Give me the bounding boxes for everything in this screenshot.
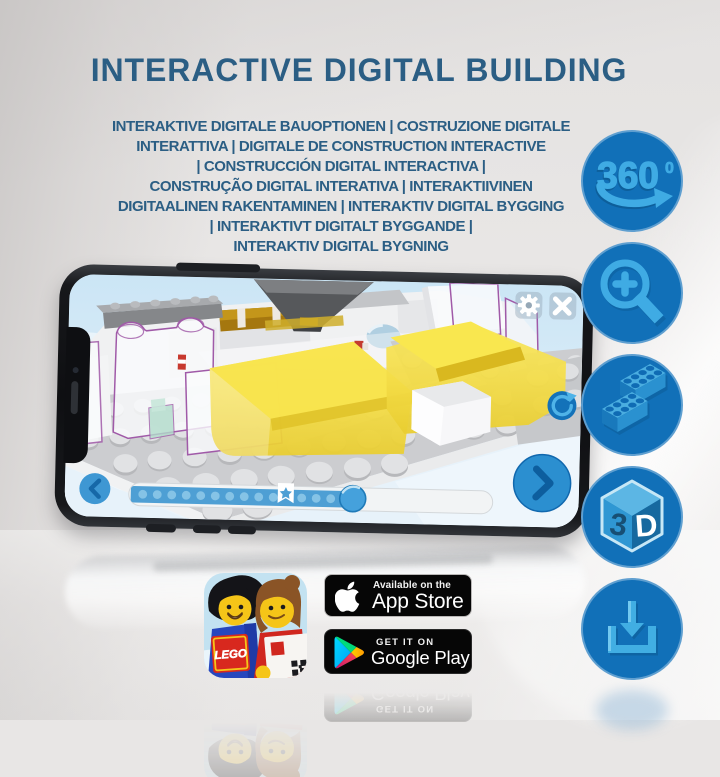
svg-text:360: 360 (597, 155, 659, 196)
svg-text:LEGO: LEGO (214, 648, 247, 662)
svg-text:0: 0 (665, 160, 674, 177)
svg-text:D: D (634, 507, 659, 543)
